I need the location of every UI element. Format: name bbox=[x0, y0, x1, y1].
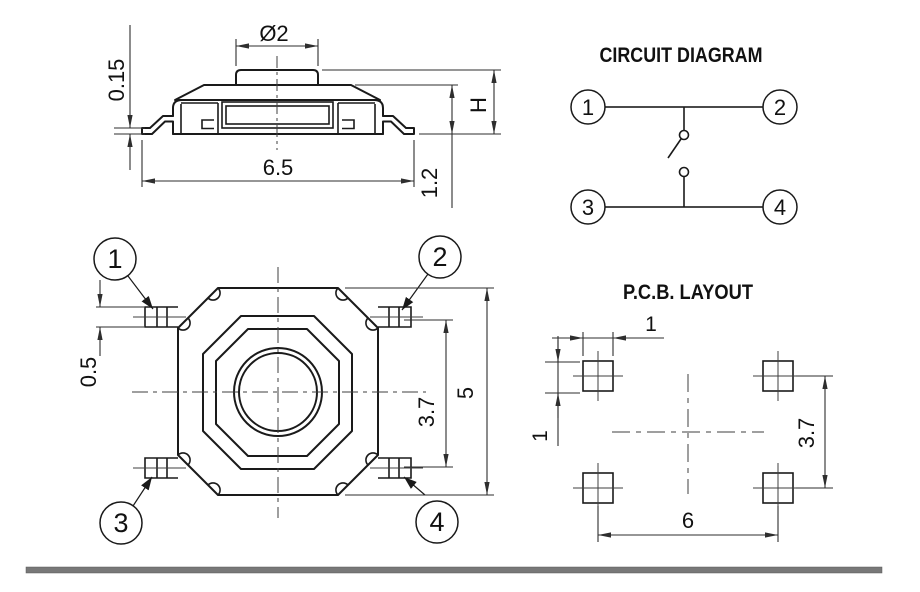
pin-3-leader bbox=[133, 477, 152, 506]
dim-height-label: H bbox=[466, 97, 491, 113]
dim-inner-span: 3.7 bbox=[404, 320, 453, 467]
datasheet-drawing-page: Ø2 0.15 6.5 H 1.2 bbox=[0, 0, 920, 592]
footer-divider-bar bbox=[26, 567, 882, 573]
side-view: Ø2 0.15 6.5 H 1.2 bbox=[104, 21, 501, 208]
pin-4-label: 4 bbox=[429, 507, 444, 537]
dim-width: 6.5 bbox=[142, 140, 414, 187]
pin-2-leader bbox=[402, 274, 428, 310]
pin-1-leader bbox=[128, 276, 153, 309]
cover-inner-lines bbox=[181, 103, 375, 134]
dim-pad-height-label: 1 bbox=[529, 430, 552, 442]
lead-left bbox=[142, 116, 173, 134]
dim-height-h: H bbox=[322, 70, 501, 134]
dim-thickness-ext bbox=[114, 128, 145, 134]
dim-col-pitch-label: 6 bbox=[682, 508, 694, 533]
circuit-diagram-title: CIRCUIT DIAGRAM bbox=[600, 44, 763, 67]
switch-contact-bottom bbox=[680, 168, 689, 177]
dim-pad-height-ext bbox=[545, 362, 580, 393]
pin-2-label: 2 bbox=[432, 242, 447, 272]
terminal-4-label: 4 bbox=[774, 195, 786, 220]
pad-topleft-cross bbox=[573, 351, 623, 401]
dim-width-label: 6.5 bbox=[263, 155, 294, 180]
terminal-3-label: 3 bbox=[582, 195, 594, 220]
dim-row-pitch-label: 3.7 bbox=[794, 418, 819, 449]
pad-bottomleft-cross bbox=[573, 463, 623, 513]
pin-balloon-1: 1 bbox=[94, 238, 153, 309]
dim-diameter-label: Ø2 bbox=[259, 21, 288, 46]
terminal-2-label: 2 bbox=[774, 95, 786, 120]
dim-row-pitch: 3.7 bbox=[794, 376, 833, 488]
terminal-1: 1 bbox=[571, 90, 605, 124]
dim-lead-width: 0.5 bbox=[76, 280, 144, 387]
terminal-1-label: 1 bbox=[582, 95, 594, 120]
terminal-4: 4 bbox=[763, 190, 797, 224]
top-view: 1 2 3 4 0.5 3.7 bbox=[76, 236, 494, 544]
lead-right bbox=[383, 116, 414, 134]
lead-hook-right bbox=[342, 120, 354, 129]
dim-pad-height: 1 bbox=[529, 336, 580, 446]
pin-1-label: 1 bbox=[107, 244, 122, 274]
pin-3-label: 3 bbox=[113, 508, 128, 538]
pin-balloon-2: 2 bbox=[402, 236, 461, 310]
pin-balloon-3: 3 bbox=[100, 477, 152, 544]
dim-body-height-label: 1.2 bbox=[417, 168, 442, 199]
terminal-2: 2 bbox=[763, 90, 797, 124]
dim-pad-width: 1 bbox=[552, 313, 664, 356]
dim-inner-span-label: 3.7 bbox=[414, 397, 439, 428]
lead-hook-left bbox=[202, 120, 214, 129]
switch-lever bbox=[668, 139, 681, 158]
dim-thickness: 0.15 bbox=[104, 25, 145, 170]
pad-topright-cross bbox=[753, 351, 803, 401]
pcb-layout: P.C.B. LAYOUT 1 1 bbox=[529, 281, 833, 542]
dim-pad-width-label: 1 bbox=[645, 313, 657, 336]
pcb-layout-title: P.C.B. LAYOUT bbox=[623, 281, 753, 304]
switch-contact-top bbox=[680, 131, 689, 140]
dim-thickness-label: 0.15 bbox=[104, 59, 129, 102]
dim-lead-width-label: 0.5 bbox=[76, 357, 101, 388]
top-view-part bbox=[132, 267, 426, 518]
pin-4-leader bbox=[404, 477, 425, 495]
drawing-canvas: Ø2 0.15 6.5 H 1.2 bbox=[0, 0, 920, 592]
pad-bottomright-cross bbox=[753, 463, 803, 513]
terminal-3: 3 bbox=[571, 190, 605, 224]
dim-col-pitch: 6 bbox=[598, 506, 778, 542]
circuit-diagram: CIRCUIT DIAGRAM 1 2 3 4 bbox=[571, 44, 797, 224]
dim-body-size-label: 5 bbox=[453, 387, 478, 399]
pin-balloon-4: 4 bbox=[404, 477, 458, 543]
